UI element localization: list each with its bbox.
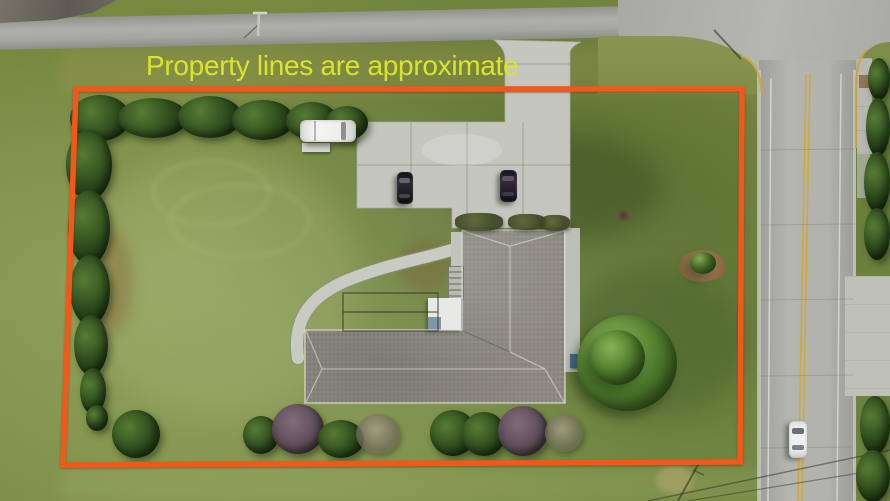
property-boundary-line: [63, 89, 742, 465]
annotation-text: Property lines are approximate: [146, 50, 518, 82]
aerial-photo: Property lines are approximate: [0, 0, 890, 501]
